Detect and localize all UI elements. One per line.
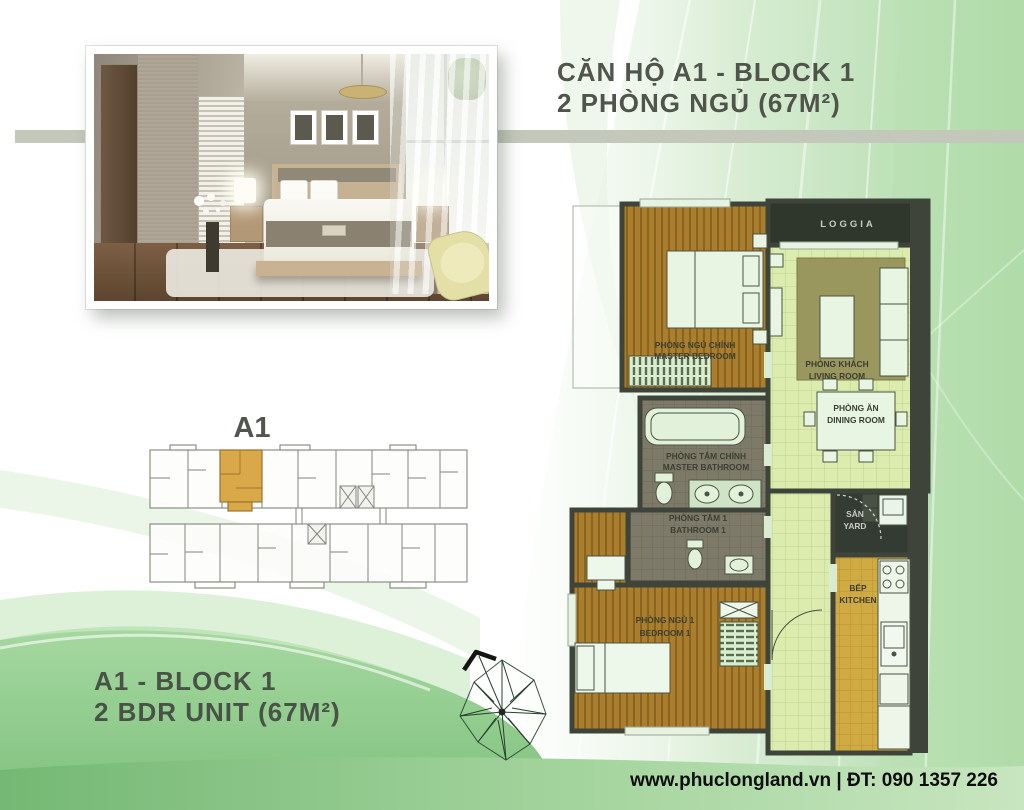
keyplan-balcony	[390, 582, 426, 588]
keyplan-row-top	[150, 450, 467, 508]
furniture-dining-chair	[859, 451, 873, 462]
label-master-bedroom-en: MASTER BEDROOM	[654, 351, 735, 361]
fixture-drain	[705, 492, 709, 496]
photo-table-lamp	[234, 178, 256, 203]
door-kitchen	[829, 564, 837, 592]
photo-pillow	[280, 180, 308, 201]
keyplan-balcony	[195, 582, 235, 588]
label-bathroom1-en: BATHROOM 1	[670, 525, 726, 535]
furniture-dining-chair	[804, 412, 815, 426]
photo-book	[322, 225, 346, 236]
unit-summary-line1: A1 - BLOCK 1	[94, 666, 341, 697]
furniture-coffee-table	[820, 296, 854, 358]
photo-pendant-wire	[361, 54, 363, 87]
furniture-plant	[770, 254, 783, 267]
label-yard-vi: SÂN	[846, 508, 864, 519]
compass-arrow	[464, 652, 496, 670]
photo-picture-frame	[352, 110, 379, 145]
window-bedroom-1-bottom	[625, 727, 709, 735]
photo-nightstand	[230, 206, 263, 242]
window-loggia-door	[780, 242, 898, 249]
outer-wall-right	[910, 201, 928, 753]
label-master-bath-vi: PHÒNG TẮM CHÍNH	[666, 450, 746, 461]
keyplan-balcony	[290, 582, 324, 588]
apartment-floorplan: PHÒNG NGỦ CHÍNH MASTER BEDROOM PHÒNG KHÁ…	[565, 196, 937, 766]
unit-summary-line2: 2 BDR UNIT (67M²)	[94, 697, 341, 728]
keyplan-floorplate	[140, 444, 470, 594]
label-bedroom1-en: BEDROOM 1	[640, 628, 691, 638]
footer-contact: www.phuclongland.vn | ĐT: 090 1357 226	[630, 770, 998, 792]
label-bathroom1-vi: PHÒNG TẮM 1	[669, 512, 728, 523]
photo-flowers	[194, 196, 204, 206]
label-yard-en: YARD	[844, 521, 867, 531]
furniture-dining-chair	[896, 412, 907, 426]
compass-arrow-line	[479, 656, 502, 710]
furniture-nightstand	[753, 234, 767, 248]
keyplan-highlighted-unit-a1	[220, 450, 262, 511]
fixture-toilet	[656, 482, 672, 504]
label-loggia: LOGGIA	[820, 219, 875, 230]
compass-north-arrow	[448, 636, 558, 766]
photo-picture-frame	[321, 110, 348, 145]
page-title: CĂN HỘ A1 - BLOCK 1 2 PHÒNG NGỦ (67M²)	[557, 57, 855, 119]
unit-summary: A1 - BLOCK 1 2 BDR UNIT (67M²)	[94, 666, 341, 728]
page-title-line1: CĂN HỘ A1 - BLOCK 1	[557, 57, 855, 88]
label-kitchen-en: KITCHEN	[839, 595, 876, 605]
label-master-bedroom-vi: PHÒNG NGỦ CHÍNH	[655, 339, 736, 350]
fixture-kitchen-sink	[881, 622, 907, 666]
label-living-vi: PHÒNG KHÁCH	[805, 358, 868, 369]
furniture-nightstand	[753, 330, 767, 344]
fixture-toilet-tank	[655, 473, 673, 482]
door-master-bedroom	[764, 352, 772, 378]
window-bedroom-1	[568, 594, 576, 646]
fixture-toilet-tank	[687, 540, 703, 548]
door-bedroom-1	[764, 664, 772, 690]
furniture-pillow	[577, 646, 594, 690]
door-bathroom-1	[764, 516, 772, 538]
fixture-faucet	[892, 652, 896, 656]
keyplan-unit-label: A1	[222, 412, 282, 445]
brochure-page: { "header": { "line1": "CĂN HỘ A1 - BLOC…	[0, 0, 1024, 810]
room-corridor	[768, 491, 833, 753]
furniture-tv-cabinet	[770, 288, 782, 336]
fixture-bathtub	[645, 408, 745, 445]
furniture-desk	[587, 556, 625, 580]
bedroom-photo	[86, 46, 497, 309]
photo-pendant-lamp	[339, 85, 387, 99]
label-master-bath-en: MASTER BATHROOM	[663, 462, 749, 472]
label-dining-en: DINING ROOM	[827, 415, 885, 425]
label-bedroom1-vi: PHÒNG NGỦ 1	[636, 614, 695, 625]
door-master-bathroom	[764, 444, 772, 466]
photo-vase	[206, 222, 219, 272]
furniture-dining-chair	[823, 451, 837, 462]
furniture-sofa	[880, 268, 908, 376]
label-dining-vi: PHÒNG ĂN	[833, 402, 878, 413]
fixture-drain	[739, 492, 743, 496]
photo-picture-frame	[290, 110, 317, 145]
bedroom-photo-scene	[94, 54, 489, 301]
label-kitchen-vi: BẾP	[849, 583, 867, 593]
window-master-bedroom	[640, 199, 730, 207]
photo-pillow	[310, 180, 338, 201]
furniture-pillow	[743, 293, 759, 323]
page-title-line2: 2 PHÒNG NGỦ (67M²)	[557, 88, 855, 119]
furniture-wardrobe-1	[720, 622, 758, 666]
label-living-en: LIVING ROOM	[809, 371, 865, 381]
ac-ledge	[573, 206, 622, 388]
furniture-desk-chair	[597, 580, 615, 590]
furniture-pillow	[743, 256, 759, 286]
fixture-toilet	[688, 549, 702, 569]
